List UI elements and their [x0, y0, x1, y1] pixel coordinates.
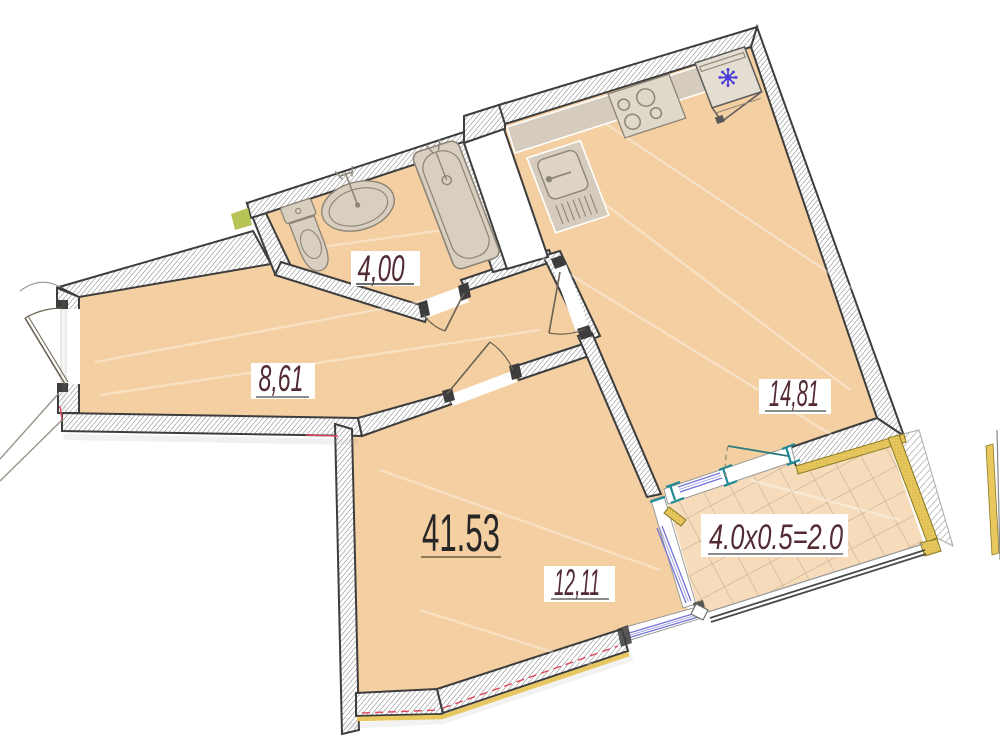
svg-text:14,81: 14,81 [769, 373, 819, 414]
svg-text:12,11: 12,11 [554, 562, 600, 603]
svg-text:4.0x0.5=2.0: 4.0x0.5=2.0 [709, 518, 843, 557]
svg-text:41.53: 41.53 [422, 504, 500, 563]
svg-text:8,61: 8,61 [259, 358, 304, 399]
svg-text:4,00: 4,00 [358, 248, 405, 289]
